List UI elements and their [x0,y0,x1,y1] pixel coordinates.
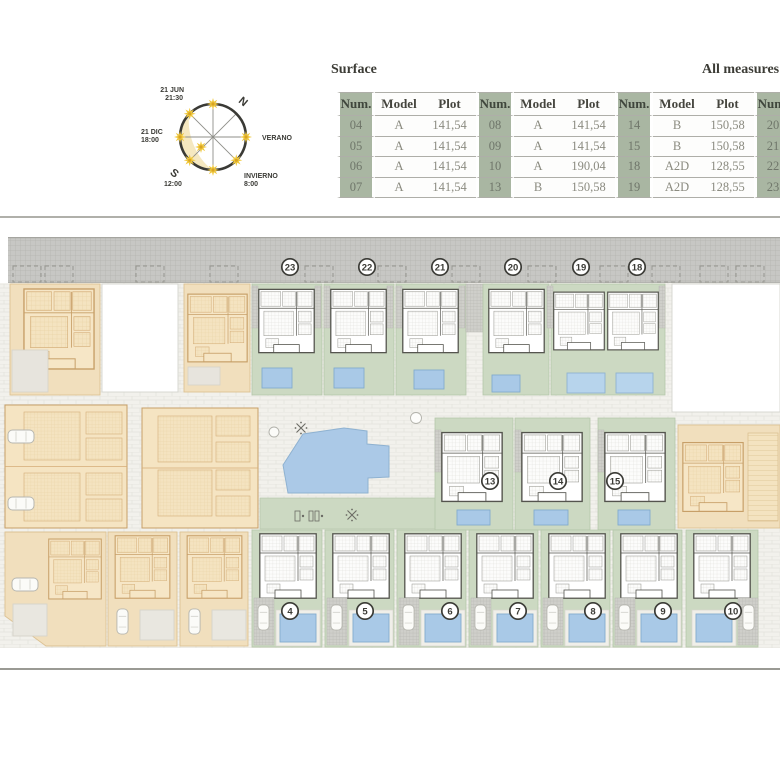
compass-label-jun-time: 21:30 [165,95,183,102]
unit-lot-23 [252,284,322,395]
site-plan: 23 22 21 20 19 18 [0,220,780,670]
duplex-sold-1 [5,405,127,528]
car-icon [331,605,342,630]
unit-lot-21 [396,284,466,395]
unit-marker-20: 20 [505,259,521,275]
table-header-row: Num. Model Plot Num. Model Plot Num. Mod… [337,92,780,116]
car-icon [8,497,34,510]
unit-marker-14: 14 [550,473,566,489]
measures-note: All measures a [702,62,780,78]
svg-text:14: 14 [553,476,564,487]
unit-lot-6: 6 [397,530,466,647]
unit-lot-4: 4 [252,530,322,647]
svg-text:9: 9 [660,606,665,617]
unit-lot-5: 5 [325,530,394,647]
unit-marker-18: 18 [629,259,645,275]
col-header: Plot [423,92,476,116]
car-icon [743,605,754,630]
col-header: Num. [337,92,375,116]
lot-empty-top [102,284,178,392]
unit-lot-8: 8 [541,530,610,647]
surface-table-clip: Num. Model Plot Num. Model Plot Num. Mod… [337,92,780,210]
surface-table: Num. Model Plot Num. Model Plot Num. Mod… [337,92,780,198]
svg-text:21: 21 [435,262,446,273]
col-header: Plot [701,92,754,116]
svg-text:23: 23 [285,262,296,273]
car-icon [8,430,34,443]
svg-text:18: 18 [632,262,643,273]
svg-text:6: 6 [447,606,452,617]
col-header: Num. [476,92,514,116]
compass-label-dic-time: 18:00 [141,137,159,144]
lot-empty-top-right [672,284,780,412]
svg-text:15: 15 [610,476,621,487]
compass-label-dic-date: 21 DIC [141,129,163,136]
lot-sold-top-1 [10,284,100,395]
table-row: 05A141,54 09A141,54 15B150,58 21 [337,137,780,158]
unit-marker-15: 15 [607,473,623,489]
unit-lot-13: 13 [435,418,513,530]
manhole [411,413,422,424]
table-row: 06A141,54 10A190,04 18A2D128,55 22 [337,157,780,178]
col-header: Model [653,92,701,116]
car-icon [619,605,630,630]
compass-label-noon: 12:00 [164,181,182,188]
unit-marker-21: 21 [432,259,448,275]
lot-sold-right [678,425,780,528]
table-row: 04A141,54 08A141,54 14B150,58 20 [337,116,780,137]
unit-marker-5: 5 [357,603,373,619]
tree [269,427,279,437]
svg-text:13: 13 [485,476,496,487]
svg-text:7: 7 [515,606,520,617]
compass-label-invierno-time: 8:00 [244,181,258,188]
compass-label-south: S [167,167,180,181]
unit-lot-20 [483,284,549,395]
svg-text:10: 10 [728,606,739,617]
car-icon [258,605,269,630]
sun-path-diagram: 21 JUN 21:30 N 21 DIC 18:00 VERANO S 12:… [128,73,300,205]
compass-label-north: N [236,95,250,109]
unit-marker-10: 10 [725,603,741,619]
svg-text:4: 4 [287,606,293,617]
surface-title: Surface [331,62,377,78]
unit-marker-23: 23 [282,259,298,275]
col-header: Plot [562,92,615,116]
side-strip [466,284,483,332]
lot-sold-bottom-2 [108,532,177,646]
col-header: Num. [754,92,780,116]
unit-marker-7: 7 [510,603,526,619]
masterplan-page: 21 JUN 21:30 N 21 DIC 18:00 VERANO S 12:… [0,0,780,780]
car-icon [189,609,200,634]
communal-garden [260,498,436,529]
car-icon [403,605,414,630]
table-row: 07A141,54 13B150,58 19A2D128,55 23 [337,178,780,199]
duplex-sold-2 [142,408,258,528]
unit-marker-6: 6 [442,603,458,619]
unit-marker-19: 19 [573,259,589,275]
unit-lot-14: 14 [515,418,590,530]
road-band [8,237,780,283]
unit-lot-9: 9 [613,530,682,647]
svg-text:22: 22 [362,262,373,273]
lot-sold-top-2 [184,284,250,392]
car-icon [117,609,128,634]
compass-label-invierno: INVIERNO [244,173,278,180]
car-icon [475,605,486,630]
lot-sold-bottom-3 [180,532,248,646]
unit-marker-9: 9 [655,603,671,619]
compass-label-verano: VERANO [262,135,293,142]
unit-lot-7: 7 [469,530,538,647]
unit-marker-13: 13 [482,473,498,489]
svg-text:8: 8 [590,606,595,617]
unit-lot-15: 15 [598,418,675,530]
car-icon [12,578,38,591]
svg-text:19: 19 [576,262,587,273]
compass-label-jun-date: 21 JUN [160,87,184,94]
car-icon [547,605,558,630]
unit-marker-4: 4 [282,603,298,619]
unit-lot-22 [324,284,394,395]
col-header: Model [514,92,562,116]
separator-bottom [0,668,780,670]
svg-text:20: 20 [508,262,519,273]
unit-marker-8: 8 [585,603,601,619]
unit-lot-19-18 [547,284,665,395]
svg-text:5: 5 [362,606,368,617]
lot-sold-corner [5,532,106,646]
separator-top [0,216,780,218]
unit-marker-22: 22 [359,259,375,275]
unit-lot-10: 10 [686,530,758,647]
col-header: Num. [615,92,653,116]
col-header: Model [375,92,423,116]
